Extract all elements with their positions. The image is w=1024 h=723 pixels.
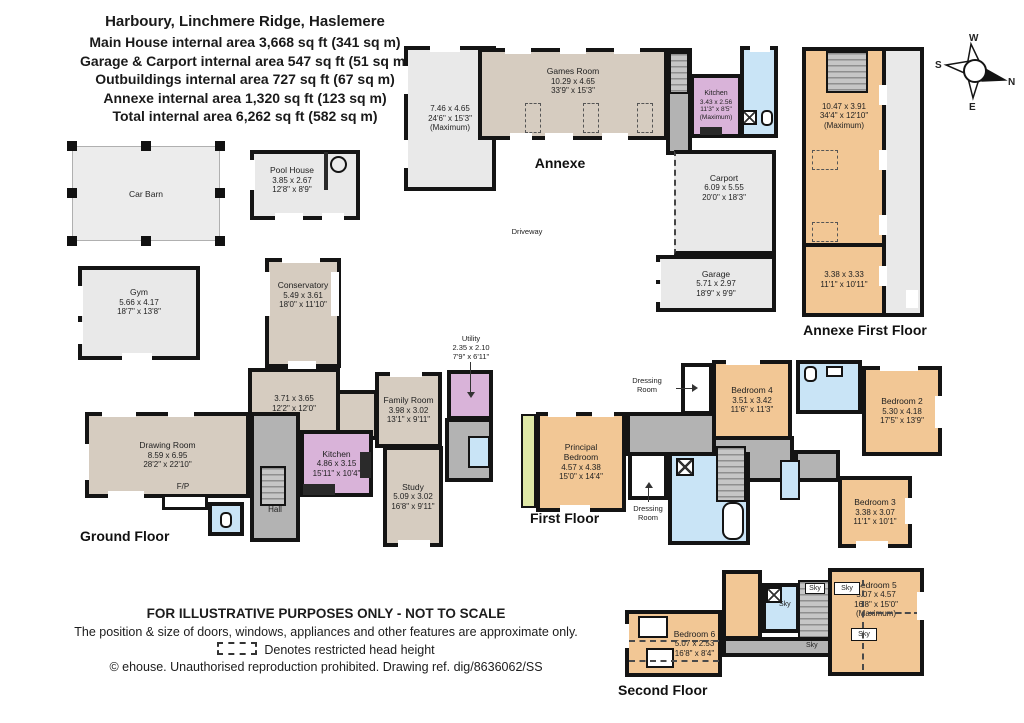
room-label: Dressing [633, 504, 663, 513]
room-label: Study [402, 482, 424, 492]
legend-text: Denotes restricted head height [264, 643, 434, 657]
room-dim-imperial: 13'1" x 9'11" [387, 415, 430, 425]
restricted-head-height-box [525, 103, 541, 133]
window [560, 46, 586, 54]
room-bedroom-2: Bedroom 2 5.30 x 4.18 17'5" x 13'9" [862, 366, 942, 456]
room-dim-note: (Maximum) [430, 123, 470, 133]
dressing-pointer-arrow [692, 384, 698, 392]
bed-symbol [638, 616, 668, 638]
window [398, 540, 430, 548]
shower-symbol [742, 110, 757, 125]
post [215, 236, 225, 246]
compass-east: E [969, 102, 976, 113]
landing [794, 450, 840, 482]
room-dim-imperial: 34'4" x 12'10" [820, 111, 868, 121]
main-staircase [260, 466, 286, 506]
counter-symbol [303, 484, 335, 495]
post [67, 236, 77, 246]
window [81, 444, 89, 480]
room-dim-imperial: 16'8" x 8'4" [675, 649, 714, 659]
cooker-symbol [700, 127, 722, 135]
window [75, 286, 83, 316]
restricted-head-height-line [862, 580, 864, 670]
room-label: Garage [702, 269, 730, 279]
window [614, 46, 640, 54]
skylight-label: Sky [779, 601, 791, 608]
room-dim-imperial: 18'9" x 9'9" [696, 289, 735, 299]
oven-symbol [360, 452, 371, 478]
first-floor-staircase [716, 446, 746, 502]
room-principal-bedroom: Principal Bedroom 4.57 x 4.38 15'0" x 14… [536, 412, 626, 512]
annexe-first-floor-label: Annexe First Floor [790, 322, 940, 338]
window [247, 160, 255, 190]
room-label: Drawing Room [139, 440, 195, 450]
window [560, 505, 590, 513]
ground-floor-label: Ground Floor [80, 528, 210, 544]
post [67, 188, 77, 198]
room-dim-metric: 7.46 x 4.65 [430, 104, 470, 114]
shower-cubicle [468, 436, 490, 468]
toilet-symbol [761, 110, 773, 126]
post [215, 141, 225, 151]
second-floor-label: Second Floor [618, 682, 738, 698]
room-dim-imperial: 11'1" x 10'11" [820, 280, 867, 290]
room-bedroom-4: Bedroom 4 3.51 x 3.42 11'6" x 11'3" [712, 360, 792, 440]
restricted-head-height-box [583, 103, 599, 133]
window [905, 498, 913, 524]
window [856, 541, 888, 549]
room-label: Bedroom 3 [854, 497, 896, 507]
annexe-first-eaves-strip [882, 47, 924, 317]
post [67, 141, 77, 151]
room-dim-metric: 5.30 x 4.18 [882, 407, 922, 417]
restricted-head-height-box [812, 150, 838, 170]
window [879, 150, 887, 170]
window [879, 85, 887, 105]
room-dim-metric: 10.47 x 3.91 [822, 102, 866, 112]
second-floor-landing [722, 637, 842, 657]
room-gym: Gym 5.66 x 4.17 18'7" x 13'8" [78, 266, 200, 360]
area-line-total: Total internal area 6,262 sq ft (582 sq … [35, 107, 455, 126]
window [935, 396, 943, 428]
interior-wall [324, 152, 328, 190]
room-dim-metric: 4.57 x 4.38 [561, 463, 601, 473]
room-label: Utility [462, 334, 480, 343]
window [906, 290, 918, 308]
skylight-label: Sky [805, 583, 825, 594]
room-label: Car Barn [129, 189, 163, 199]
room-dim-imperial: 20'0" x 18'3" [702, 193, 746, 203]
room-carport: Carport 6.09 x 5.55 20'0" x 18'3" [674, 150, 776, 255]
window [917, 592, 925, 620]
utility-label: Utility 2.35 x 2.10 7'9" x 6'11" [438, 334, 504, 361]
window [726, 357, 760, 365]
room-bedroom-3: Bedroom 3 3.38 x 3.07 11'1" x 10'1" [838, 476, 912, 548]
skylight-label: Sky [834, 582, 860, 595]
window [75, 322, 83, 344]
room-dim-imperial: 15'11" x 10'4" [313, 469, 361, 479]
skylight-label: Sky [806, 642, 818, 649]
window [548, 409, 576, 417]
compass-west: W [969, 33, 979, 44]
restricted-head-height-line [629, 640, 719, 642]
room-label: Carport [710, 173, 738, 183]
room-dim-imperial: 18'0" x 11'10" [279, 300, 327, 310]
dressing-pointer-line [676, 388, 692, 389]
room-label: Room [637, 385, 657, 394]
post [215, 188, 225, 198]
room-dim-metric: 10.29 x 4.65 [551, 77, 595, 87]
hall-label: Hall [258, 505, 292, 515]
window [879, 215, 887, 235]
window [400, 66, 408, 94]
utility-pointer-line [470, 362, 471, 392]
disclaimer-block: FOR ILLUSTRATIVE PURPOSES ONLY - NOT TO … [30, 606, 622, 677]
annexe-floor-label: Annexe [505, 155, 615, 171]
window [602, 133, 628, 141]
room-dim-imperial: 24'6" x 15'3" [428, 114, 472, 124]
window [750, 44, 770, 52]
window [400, 140, 408, 168]
compass-rose-icon: W S N E [933, 30, 1017, 114]
toilet-symbol [804, 366, 817, 382]
dressing-pointer-line [648, 488, 649, 502]
room-dim-imperial: 15'0" x 14'4" [559, 472, 603, 482]
annexe-staircase [669, 52, 689, 94]
dressing-pointer-arrow [645, 482, 653, 488]
room-dim-imperial: 17'5" x 13'9" [880, 416, 924, 426]
room-label: Bedroom 6 [674, 629, 716, 639]
room-dim-metric: 3.51 x 3.42 [732, 396, 772, 406]
compass-north: N [1008, 77, 1015, 88]
room-dim-metric: 3.38 x 3.07 [855, 508, 895, 518]
disclaimer-legend: Denotes restricted head height [30, 642, 622, 657]
room-dim-metric: 3.38 x 3.33 [824, 270, 864, 280]
property-address: Harboury, Linchmere Ridge, Haslemere [35, 13, 455, 30]
window [592, 409, 614, 417]
garage-door [653, 262, 661, 280]
room-dim-metric: 3.98 x 3.02 [389, 406, 429, 416]
plan-header: Harboury, Linchmere Ridge, Haslemere Mai… [35, 13, 455, 126]
room-dim-imperial: 28'2" x 22'10" [143, 460, 191, 470]
door-opening [122, 353, 152, 361]
room-dim-metric: 6.09 x 5.55 [704, 183, 744, 193]
door-opening [275, 213, 303, 220]
room-dim-metric: 3.85 x 2.67 [272, 176, 312, 186]
landing [626, 412, 718, 456]
annexe-first-staircase [826, 51, 868, 93]
area-line-main-house: Main House internal area 3,668 sq ft (34… [35, 33, 455, 52]
room-label: Family Room [383, 395, 433, 405]
window [322, 213, 344, 220]
post [141, 236, 151, 246]
room-dim-imperial: 11'1" x 10'1" [853, 517, 896, 527]
skylight-label: Sky [851, 628, 877, 641]
room-label: Bedroom 4 [731, 385, 773, 395]
room-dim-imperial: 16'8" x 15'0" [854, 600, 898, 610]
room-dim-metric: 5.49 x 3.61 [283, 291, 323, 301]
window [262, 272, 270, 316]
room-dim-metric: 4.86 x 3.15 [317, 459, 357, 469]
disclaimer-accuracy: The position & size of doors, windows, a… [30, 625, 622, 639]
room-dim-metric: 8.59 x 6.95 [148, 451, 188, 461]
balcony-strip [521, 414, 536, 508]
room-label: Bedroom 2 [881, 396, 923, 406]
room-garage: Garage 5.71 x 2.97 18'9" x 9'9" [656, 255, 776, 312]
room-dim-imperial: 18'7" x 13'8" [117, 307, 161, 317]
toilet-symbol [220, 512, 232, 528]
room-dim-metric: 5.71 x 2.97 [696, 279, 736, 289]
room-dim-imperial: 7'9" x 6'11" [453, 352, 489, 361]
window [879, 266, 887, 286]
room-dim-imperial: 12'8" x 8'9" [272, 185, 311, 195]
window [102, 409, 136, 417]
hot-tub-symbol [330, 156, 347, 173]
window [282, 255, 320, 263]
room-dim-metric: 5.66 x 4.17 [119, 298, 159, 308]
copyright-line: © ehouse. Unauthorised reproduction proh… [30, 660, 622, 674]
room-dim-note: (Maximum) [700, 114, 733, 122]
room-conservatory: Conservatory 5.49 x 3.61 18'0" x 11'10" [265, 258, 341, 368]
fireplace-recess [162, 494, 208, 510]
bathtub-symbol [722, 502, 744, 540]
window [505, 46, 531, 54]
restricted-head-height-line [868, 612, 920, 614]
room-dim-metric: 5.09 x 3.02 [393, 492, 433, 502]
room-label: Bedroom [564, 452, 599, 462]
post [141, 141, 151, 151]
room-label: Principal [565, 442, 598, 452]
window [621, 624, 629, 648]
garage-door [653, 284, 661, 302]
sink-symbol [826, 366, 843, 377]
room-dim-imperial: 11'6" x 11'3" [731, 405, 774, 415]
room-label: Pool House [270, 165, 314, 175]
area-line-outbuildings: Outbuildings internal area 727 sq ft (67… [35, 70, 455, 89]
room-dim-metric: 3.43 x 2.56 [700, 99, 732, 107]
room-dim-imperial: 33'9" x 15'3" [551, 86, 595, 96]
room-label: Conservatory [278, 280, 329, 290]
second-floor-room [722, 570, 762, 640]
compass-south: S [935, 60, 942, 71]
room-annexe-first-second: 3.38 x 3.33 11'1" x 10'11" [802, 243, 886, 317]
room-dim-metric: 2.35 x 2.10 [452, 343, 489, 352]
room-dim-metric: 3.71 x 3.65 [274, 394, 314, 404]
room-label: Gym [130, 287, 148, 297]
utility-pointer-arrow [467, 392, 475, 398]
area-line-garage-carport: Garage & Carport internal area 547 sq ft… [35, 52, 455, 71]
window [510, 133, 532, 141]
restricted-head-height-icon [217, 642, 257, 655]
restricted-head-height-box [637, 103, 653, 133]
room-dim-note: (Maximum) [824, 121, 864, 131]
restricted-head-height-box [812, 222, 838, 242]
ensuite-sink-area [780, 460, 800, 500]
room-label: Games Room [547, 66, 599, 76]
room-dim-imperial: 16'8" x 9'11" [391, 502, 434, 512]
restricted-head-height-line [629, 660, 719, 662]
room-label: Kitchen [704, 90, 727, 98]
window [331, 272, 339, 316]
room-label: Room [638, 513, 658, 522]
door-opening [545, 133, 573, 141]
room-car-barn: Car Barn [72, 146, 220, 241]
room-family-room: Family Room 3.98 x 3.02 13'1" x 9'11" [375, 372, 442, 448]
door-opening [288, 361, 316, 369]
shower-symbol [676, 458, 694, 476]
window [430, 44, 460, 52]
window [108, 491, 144, 499]
window [390, 369, 422, 377]
room-label: Kitchen [322, 449, 350, 459]
dressing-room-label: Dressing Room [618, 376, 676, 394]
window [168, 409, 194, 417]
bed-symbol [646, 648, 674, 668]
driveway-label: Driveway [495, 227, 559, 236]
room-dim-imperial: 11'3" x 8'5" [700, 106, 732, 114]
room-study: Study 5.09 x 3.02 16'8" x 9'11" [383, 446, 443, 547]
room-label: Dressing [632, 376, 662, 385]
area-line-annexe: Annexe internal area 1,320 sq ft (123 sq… [35, 89, 455, 108]
window [880, 363, 918, 371]
fireplace-label: F/P [165, 482, 201, 492]
disclaimer-title: FOR ILLUSTRATIVE PURPOSES ONLY - NOT TO … [30, 606, 622, 621]
floor-plan-page: Harboury, Linchmere Ridge, Haslemere Mai… [0, 0, 1024, 723]
